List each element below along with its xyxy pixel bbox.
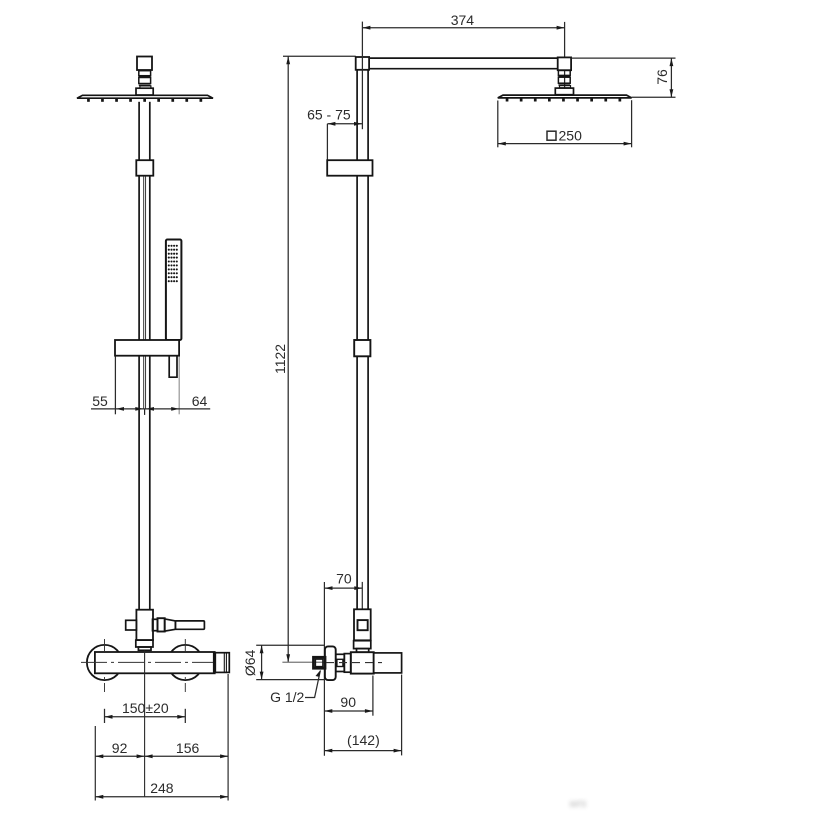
svg-text:G 1/2: G 1/2 bbox=[270, 689, 304, 705]
svg-text:92: 92 bbox=[112, 740, 128, 756]
svg-text:55: 55 bbox=[92, 393, 108, 409]
svg-text:248: 248 bbox=[150, 780, 174, 796]
svg-text:64: 64 bbox=[192, 393, 208, 409]
svg-text:90: 90 bbox=[340, 694, 356, 710]
svg-text:65 - 75: 65 - 75 bbox=[307, 107, 351, 123]
svg-text:150±20: 150±20 bbox=[122, 700, 169, 716]
svg-text:70: 70 bbox=[336, 571, 352, 587]
svg-text:374: 374 bbox=[451, 12, 475, 28]
svg-text:156: 156 bbox=[176, 740, 200, 756]
svg-text:76: 76 bbox=[654, 69, 670, 85]
svg-text:wrs: wrs bbox=[569, 798, 587, 810]
svg-text:250: 250 bbox=[559, 128, 583, 144]
svg-text:(142): (142) bbox=[347, 732, 380, 748]
svg-text:Ø64: Ø64 bbox=[242, 649, 258, 676]
svg-text:1122: 1122 bbox=[272, 344, 288, 374]
